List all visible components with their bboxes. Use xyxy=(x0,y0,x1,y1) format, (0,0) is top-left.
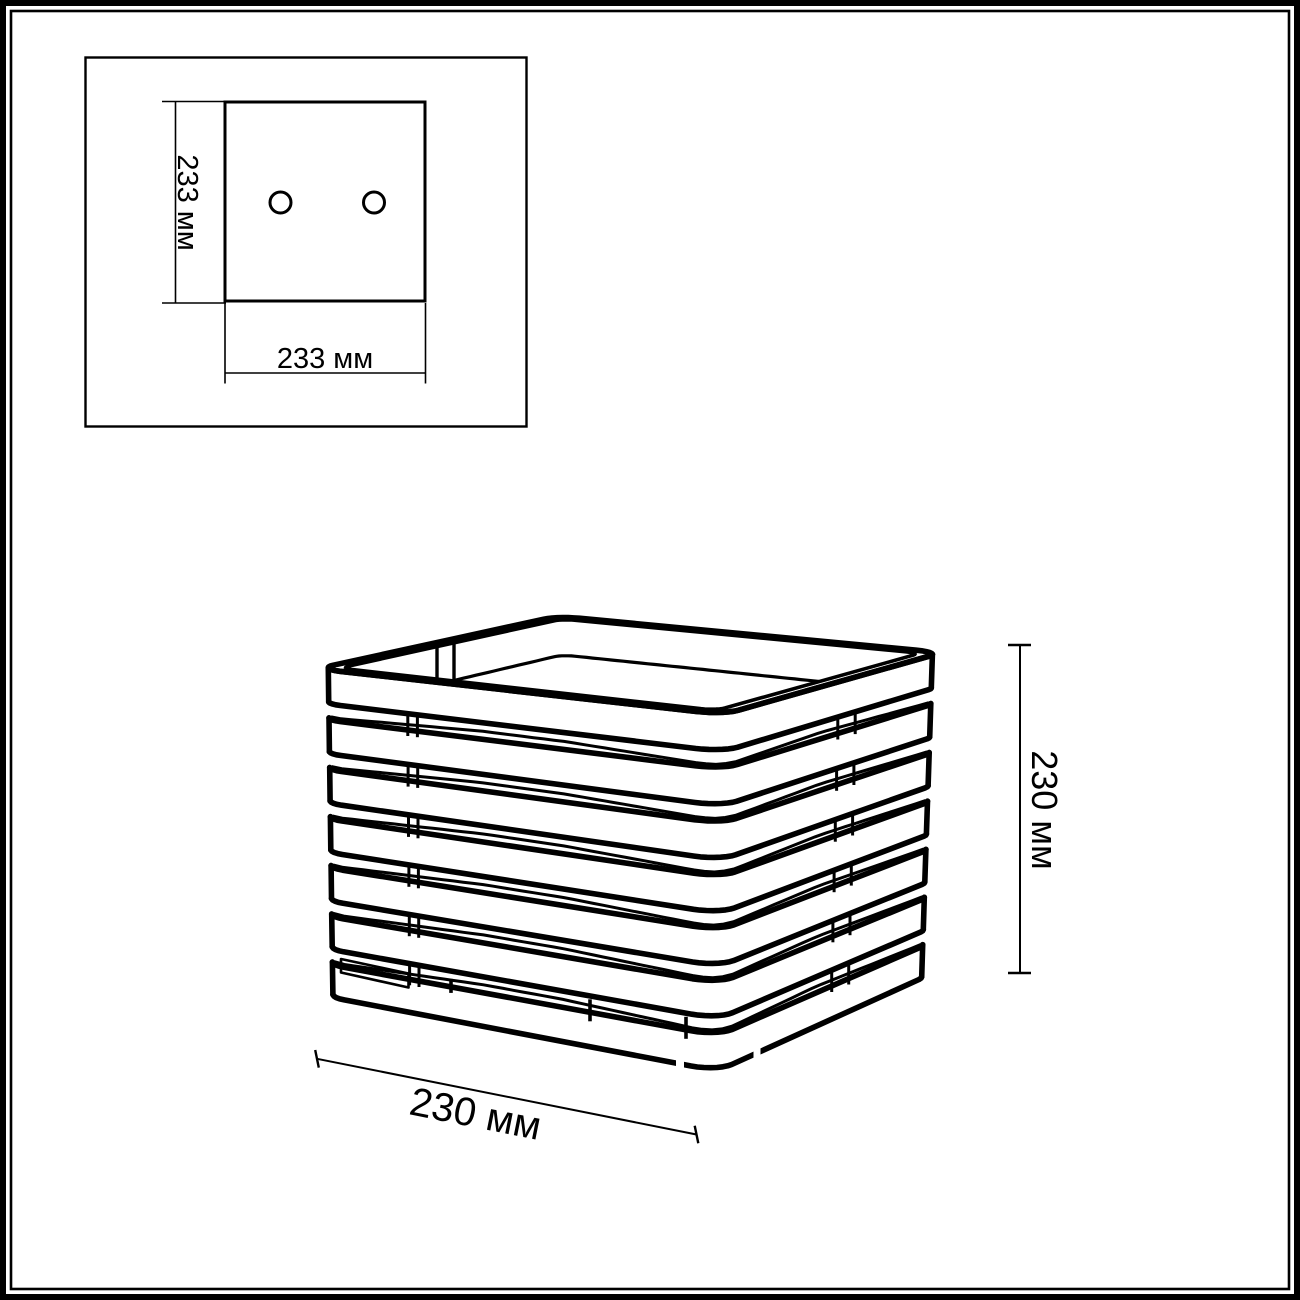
svg-text:233 мм: 233 мм xyxy=(171,154,203,250)
svg-text:230 мм: 230 мм xyxy=(1024,750,1065,870)
svg-text:233 мм: 233 мм xyxy=(277,343,373,375)
